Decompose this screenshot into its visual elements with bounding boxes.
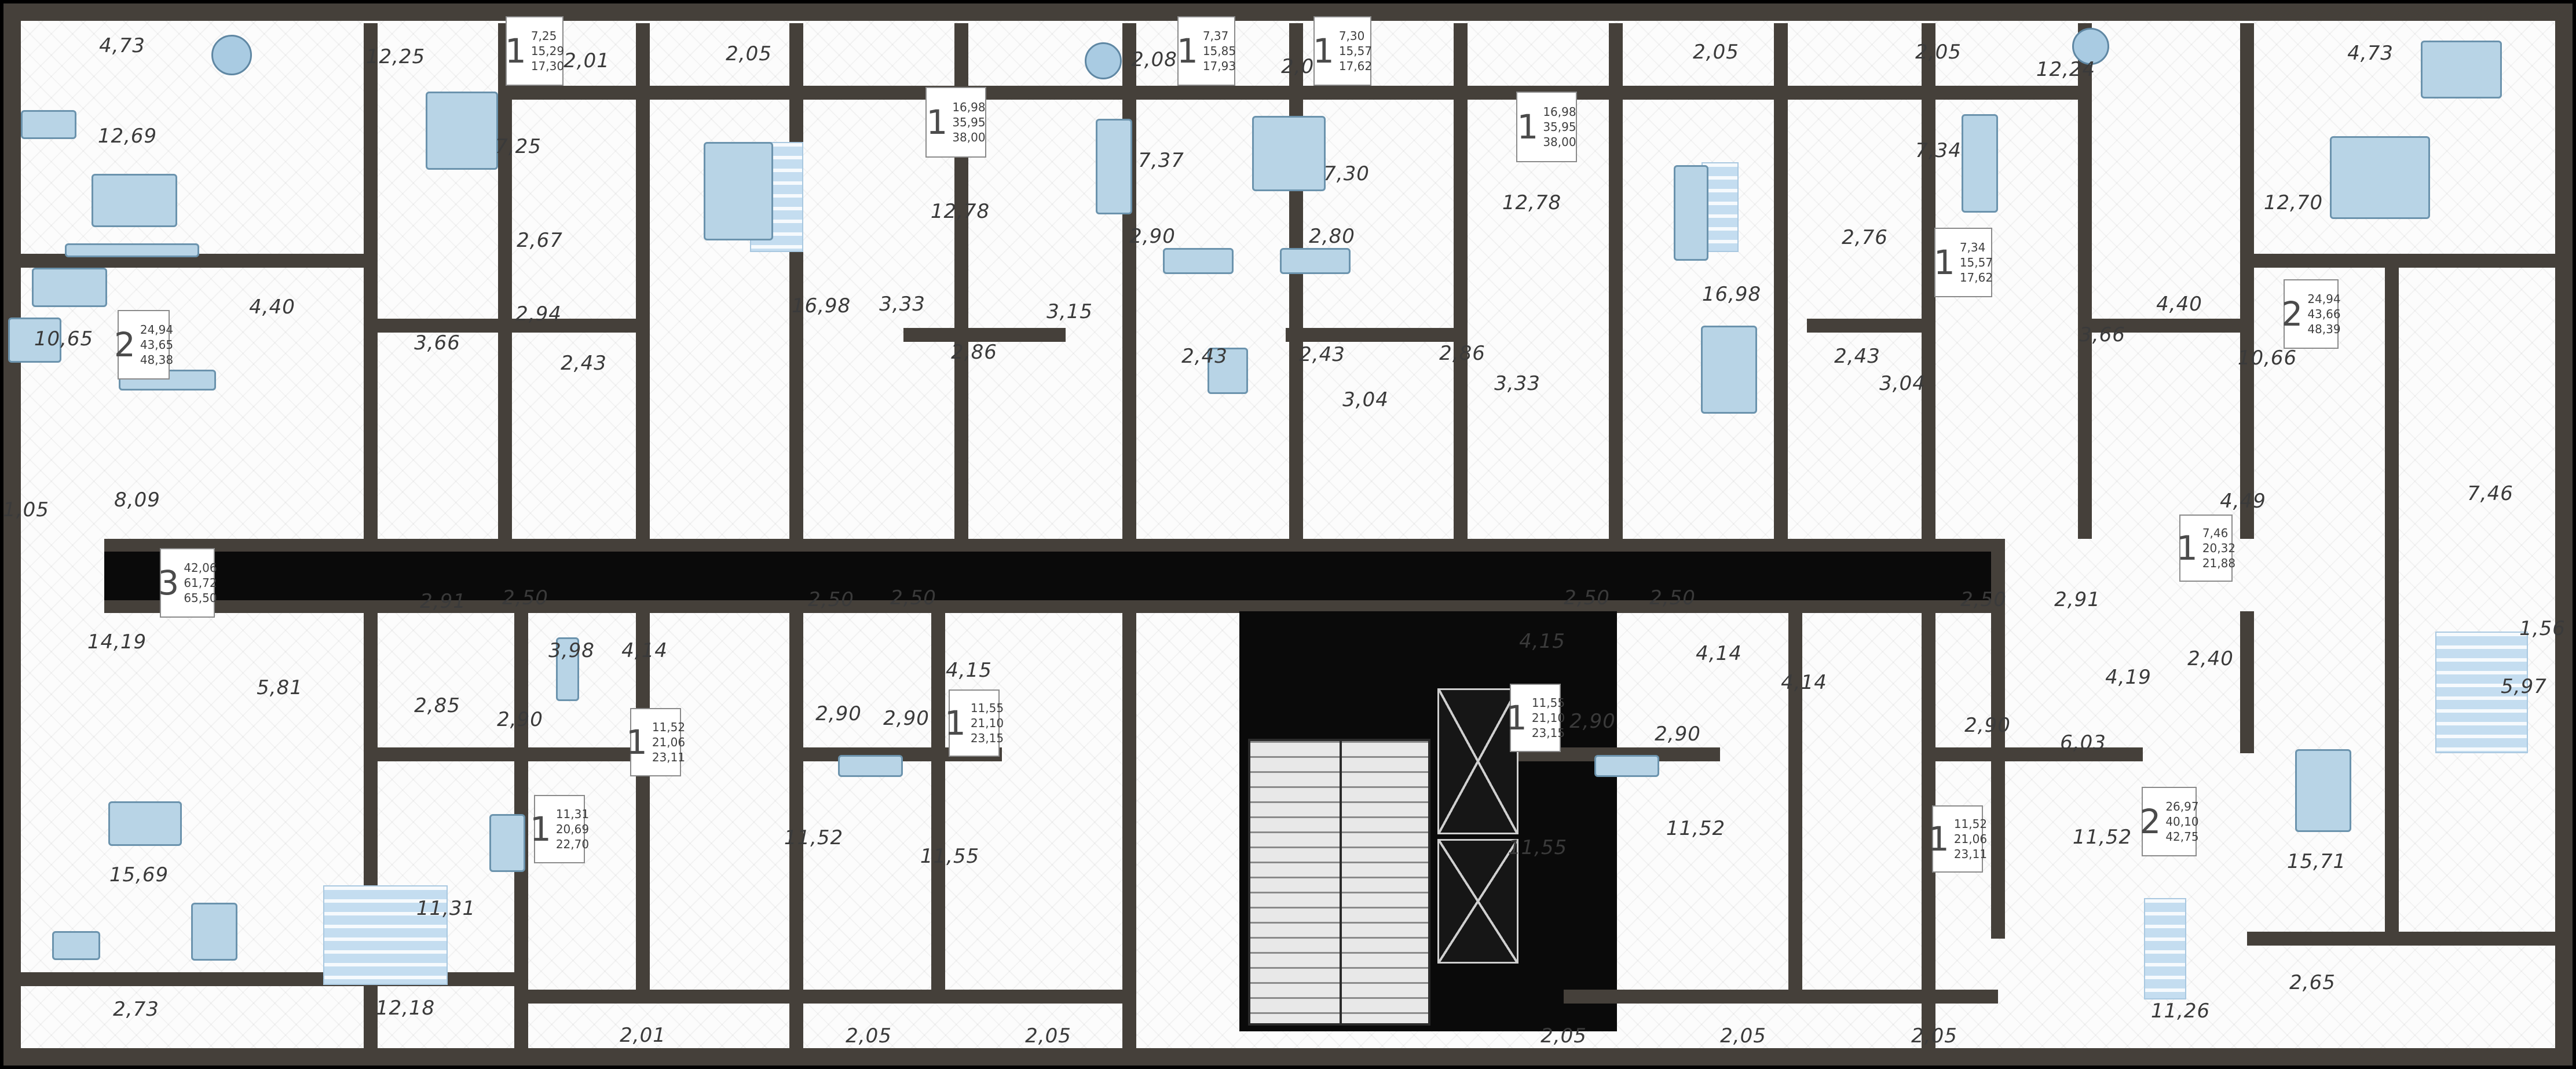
furniture-block xyxy=(838,755,903,777)
apartment-area-value: 22,70 xyxy=(556,837,589,852)
room-area-label: 4,15 xyxy=(1519,630,1565,653)
room-area-label: 12,70 xyxy=(2264,191,2323,214)
room-area-label: 3,15 xyxy=(1046,300,1093,323)
room-area-label: 3,66 xyxy=(414,331,460,355)
apartment-area-value: 23,15 xyxy=(1532,725,1565,740)
apartment-area-value: 17,62 xyxy=(1960,270,1993,285)
furniture-block xyxy=(21,110,76,139)
apartment-areas: 7,3415,5717,62 xyxy=(1960,240,1993,285)
interior-wall-vertical xyxy=(2078,23,2092,539)
room-area-label: 2,43 xyxy=(561,352,607,375)
apartment-area-value: 48,39 xyxy=(2307,322,2340,337)
apartment-rooms-count: 3 xyxy=(158,566,179,600)
room-area-label: 2,40 xyxy=(2187,647,2234,670)
apartment-areas: 24,9443,6648,39 xyxy=(2307,291,2340,337)
room-area-label: 2,05 xyxy=(726,42,772,65)
apartment-card: 116,9835,9538,00 xyxy=(1516,92,1577,162)
apartment-area-value: 43,66 xyxy=(2307,307,2340,322)
furniture-block xyxy=(1674,165,1708,261)
room-area-label: 3,98 xyxy=(548,639,595,662)
interior-wall-vertical xyxy=(789,23,803,539)
room-area-label: 11,52 xyxy=(784,826,843,849)
apartment-areas: 16,9835,9538,00 xyxy=(952,100,985,145)
interior-wall-horizontal xyxy=(371,319,643,333)
apartment-areas: 11,5521,1023,15 xyxy=(1532,695,1565,740)
interior-wall-vertical xyxy=(1774,23,1788,539)
room-area-label: 4,15 xyxy=(946,659,992,682)
interior-wall-vertical xyxy=(364,23,378,539)
apartment-area-value: 23,15 xyxy=(971,731,1004,746)
stairs-divider xyxy=(1340,741,1342,1023)
apartment-area-value: 61,72 xyxy=(184,575,217,590)
room-area-label: 2,91 xyxy=(420,590,466,613)
apartment-rooms-count: 1 xyxy=(1506,701,1527,735)
apartment-rooms-count: 1 xyxy=(945,706,966,740)
apartment-card: 224,9443,6648,39 xyxy=(2284,279,2339,349)
room-area-label: 12,18 xyxy=(376,997,435,1020)
apartment-area-value: 16,98 xyxy=(952,100,985,115)
apartment-rooms-count: 1 xyxy=(1517,110,1538,144)
room-area-label: 2,05 xyxy=(1720,1024,1766,1048)
furniture-block xyxy=(1163,248,1234,274)
room-area-label: 2,80 xyxy=(1309,225,1355,248)
apartment-area-value: 40,10 xyxy=(2165,814,2198,829)
interior-wall-vertical xyxy=(636,611,650,997)
room-area-label: 2,50 xyxy=(1564,586,1610,610)
room-area-label: 7,30 xyxy=(1323,162,1370,185)
room-area-label: 2,73 xyxy=(113,998,159,1021)
apartment-area-value: 24,94 xyxy=(2307,291,2340,307)
furniture-block xyxy=(1280,248,1351,274)
apartment-card: 17,3715,8517,93 xyxy=(1177,16,1235,86)
apartment-area-value: 35,95 xyxy=(952,115,985,130)
room-area-label: 2,90 xyxy=(883,707,930,730)
apartment-area-value: 11,55 xyxy=(971,700,1004,716)
room-area-label: 11,55 xyxy=(1508,836,1567,859)
furniture-block xyxy=(52,931,100,960)
room-area-label: 2,67 xyxy=(517,229,563,252)
apartment-card: 17,4620,3221,88 xyxy=(2179,515,2233,582)
room-area-label: 4,73 xyxy=(2347,42,2394,65)
apartment-area-value: 24,94 xyxy=(140,322,173,337)
interior-wall-vertical xyxy=(1609,23,1623,539)
apartment-area-value: 7,37 xyxy=(1203,28,1236,43)
apartment-areas: 26,9740,1042,75 xyxy=(2165,799,2198,844)
apartment-area-value: 21,10 xyxy=(1532,710,1565,725)
furniture-block xyxy=(704,142,773,240)
apartment-card: 17,3015,5717,62 xyxy=(1313,16,1371,86)
apartment-areas: 11,5221,0623,11 xyxy=(652,720,685,765)
stairs xyxy=(1248,739,1430,1026)
interior-wall-vertical xyxy=(2240,611,2254,753)
room-area-label: 10,65 xyxy=(34,327,93,351)
interior-wall-vertical xyxy=(2385,261,2399,939)
furniture-block xyxy=(1096,119,1132,214)
room-area-label: 2,05 xyxy=(1541,1024,1587,1048)
interior-wall-horizontal xyxy=(1286,328,1459,342)
furniture-block xyxy=(191,903,237,961)
room-area-label: 3,66 xyxy=(2079,323,2125,346)
interior-wall-horizontal xyxy=(903,328,1066,342)
interior-wall-vertical xyxy=(1289,23,1303,539)
apartment-rooms-count: 1 xyxy=(505,34,526,68)
apartment-rooms-count: 2 xyxy=(2281,297,2303,331)
apartment-rooms-count: 1 xyxy=(530,812,551,846)
furniture-block xyxy=(2330,136,2430,219)
room-area-label: 2,85 xyxy=(414,694,460,717)
interior-wall-horizontal xyxy=(371,747,643,761)
apartment-area-value: 43,65 xyxy=(140,337,173,352)
interior-wall-vertical xyxy=(2240,23,2254,539)
room-area-label: 8,09 xyxy=(114,488,160,512)
apartment-area-value: 11,52 xyxy=(652,720,685,735)
furniture-block xyxy=(1594,755,1659,777)
interior-wall-horizontal xyxy=(1929,747,2143,761)
apartment-area-value: 15,57 xyxy=(1960,255,1993,270)
room-area-label: 2,05 xyxy=(1915,41,1962,64)
apartment-areas: 24,9443,6548,38 xyxy=(140,322,173,367)
room-area-label: 4,40 xyxy=(2156,293,2202,316)
room-area-label: 2,01 xyxy=(620,1024,666,1047)
apartment-area-value: 11,55 xyxy=(1532,695,1565,710)
apartment-card: 17,3415,5717,62 xyxy=(1934,228,1992,297)
apartment-area-value: 48,38 xyxy=(140,352,173,367)
room-area-label: 12,24 xyxy=(2036,58,2095,81)
plant-icon xyxy=(211,35,252,75)
interior-wall-vertical xyxy=(931,611,945,997)
apartment-card: 111,5221,0623,11 xyxy=(1932,805,1983,873)
room-area-label: 2,08 xyxy=(1131,48,1177,71)
room-area-label: 2,94 xyxy=(515,302,562,326)
room-area-label: 6,03 xyxy=(2060,731,2106,754)
apartment-card: 111,3120,6922,70 xyxy=(534,795,585,863)
apartment-card: 342,0661,7265,50 xyxy=(160,548,215,618)
apartment-rooms-count: 1 xyxy=(1313,34,1334,68)
plant-icon xyxy=(1085,42,1122,79)
corridor-void xyxy=(104,539,1998,613)
apartment-card: 17,2515,2917,30 xyxy=(506,16,563,86)
room-area-label: 2,50 xyxy=(1649,586,1696,610)
furniture-block xyxy=(426,92,498,170)
room-area-label: 2,86 xyxy=(1439,342,1485,365)
rug xyxy=(2144,898,2186,999)
apartment-area-value: 15,85 xyxy=(1203,43,1236,59)
room-area-label: 2,05 xyxy=(1025,1024,1071,1048)
room-area-label: 11,26 xyxy=(2151,999,2210,1023)
apartment-areas: 7,3015,5717,62 xyxy=(1339,28,1372,74)
room-area-label: 2,43 xyxy=(1181,345,1228,368)
room-area-label: 4,49 xyxy=(2220,490,2266,513)
room-area-label: 5,81 xyxy=(257,676,303,699)
interior-wall-horizontal xyxy=(521,990,1129,1004)
room-area-label: 2,90 xyxy=(815,702,862,725)
apartment-area-value: 23,11 xyxy=(1954,847,1987,862)
furniture-block xyxy=(2295,749,2351,832)
interior-wall-horizontal xyxy=(507,86,2085,100)
apartment-area-value: 26,97 xyxy=(2165,799,2198,814)
apartment-area-value: 42,75 xyxy=(2165,829,2198,844)
room-area-label: 2,90 xyxy=(1655,723,1701,746)
interior-wall-horizontal xyxy=(1807,319,1929,333)
interior-wall-vertical xyxy=(1454,23,1468,539)
interior-wall-horizontal xyxy=(2247,254,2571,268)
room-area-label: 14,19 xyxy=(87,630,147,654)
room-area-label: 16,98 xyxy=(1702,283,1761,306)
apartment-card: 224,9443,6548,38 xyxy=(118,310,170,380)
apartment-area-value: 42,06 xyxy=(184,560,217,575)
interior-wall-horizontal xyxy=(2247,932,2571,946)
furniture-block xyxy=(92,174,177,227)
apartment-areas: 7,4620,3221,88 xyxy=(2202,526,2235,571)
apartment-areas: 7,2515,2917,30 xyxy=(531,28,564,74)
floor-plan-stage: 4,7312,252,012,052,082,052,052,0512,244,… xyxy=(0,0,2576,1069)
room-area-label: 7,25 xyxy=(495,135,541,158)
room-area-label: 10,66 xyxy=(2238,346,2297,370)
interior-wall-horizontal xyxy=(1564,990,1998,1004)
room-area-label: 2,86 xyxy=(951,341,997,364)
room-area-label: 1,56 xyxy=(2519,617,2566,640)
room-area-label: 7,46 xyxy=(2467,482,2513,505)
room-area-label: 3,33 xyxy=(1494,372,1541,395)
apartment-rooms-count: 1 xyxy=(2176,531,2198,565)
room-area-label: 4,14 xyxy=(621,639,668,662)
apartment-area-value: 23,11 xyxy=(652,750,685,765)
room-area-label: 2,50 xyxy=(808,588,854,611)
room-area-label: 2,90 xyxy=(497,708,543,731)
apartment-area-value: 35,95 xyxy=(1543,119,1576,134)
room-area-label: 3,04 xyxy=(1879,372,1926,395)
apartment-area-value: 65,50 xyxy=(184,590,217,605)
elevator-shaft-icon xyxy=(1437,839,1518,964)
apartment-areas: 7,3715,8517,93 xyxy=(1203,28,1236,74)
apartment-area-value: 7,25 xyxy=(531,28,564,43)
interior-wall-vertical xyxy=(1122,23,1136,539)
apartment-area-value: 20,69 xyxy=(556,822,589,837)
apartment-area-value: 21,10 xyxy=(971,716,1004,731)
apartment-rooms-count: 1 xyxy=(626,725,647,759)
apartment-card: 111,5521,1023,15 xyxy=(949,689,1000,757)
apartment-areas: 11,3120,6922,70 xyxy=(556,807,589,852)
room-area-label: 4,19 xyxy=(2105,666,2151,689)
interior-wall-vertical xyxy=(498,23,512,539)
room-area-label: 11,55 xyxy=(920,845,979,868)
room-area-label: 5,97 xyxy=(2501,675,2547,698)
room-area-label: 2,65 xyxy=(2289,971,2336,994)
apartment-area-value: 11,31 xyxy=(556,807,589,822)
furniture-block xyxy=(32,268,107,307)
room-area-label: 7,34 xyxy=(1915,139,1962,162)
apartment-rooms-count: 1 xyxy=(1934,246,1955,279)
interior-wall-vertical xyxy=(1788,611,1802,997)
apartment-rooms-count: 1 xyxy=(1177,34,1198,68)
room-area-label: 2,91 xyxy=(2054,588,2101,611)
apartment-area-value: 17,62 xyxy=(1339,59,1372,74)
room-area-label: 3,04 xyxy=(1342,388,1389,411)
apartment-areas: 11,5521,1023,15 xyxy=(971,700,1004,746)
furniture-block xyxy=(1252,116,1326,191)
apartment-area-value: 11,52 xyxy=(1954,816,1987,831)
apartment-card: 226,9740,1042,75 xyxy=(2142,787,2197,856)
apartment-card: 111,5221,0623,11 xyxy=(630,708,681,776)
apartment-area-value: 21,06 xyxy=(1954,831,1987,847)
apartment-area-value: 17,93 xyxy=(1203,59,1236,74)
apartment-rooms-count: 2 xyxy=(2139,805,2161,838)
interior-wall-vertical xyxy=(636,23,650,539)
furniture-block xyxy=(1962,114,1998,213)
furniture-block xyxy=(65,243,199,257)
room-area-label: 4,14 xyxy=(1696,642,1742,665)
room-area-label: 11,31 xyxy=(416,897,475,920)
room-area-label: 2,43 xyxy=(1834,345,1880,368)
room-area-label: 2,50 xyxy=(890,586,936,610)
apartment-area-value: 7,46 xyxy=(2202,526,2235,541)
room-area-label: 12,69 xyxy=(98,125,157,148)
apartment-area-value: 15,57 xyxy=(1339,43,1372,59)
room-area-label: 12,78 xyxy=(1502,191,1561,214)
apartment-area-value: 21,06 xyxy=(652,735,685,750)
room-area-label: 12,78 xyxy=(931,200,990,223)
apartment-rooms-count: 1 xyxy=(1928,822,1949,856)
room-area-label: 12,25 xyxy=(366,45,425,68)
room-area-label: 2,43 xyxy=(1299,343,1345,366)
apartment-card: 111,5521,1023,15 xyxy=(1510,684,1561,752)
apartment-area-value: 38,00 xyxy=(1543,134,1576,149)
room-area-label: 2,01 xyxy=(563,49,610,72)
room-area-label: 4,40 xyxy=(249,295,295,319)
apartment-area-value: 7,34 xyxy=(1960,240,1993,255)
apartment-areas: 16,9835,9538,00 xyxy=(1543,104,1576,149)
room-area-label: 2,76 xyxy=(1842,226,1888,249)
apartment-area-value: 38,00 xyxy=(952,130,985,145)
room-area-label: 2,90 xyxy=(1129,225,1176,248)
apartment-areas: 42,0661,7265,50 xyxy=(184,560,217,605)
room-area-label: 15,71 xyxy=(2287,850,2346,873)
furniture-block xyxy=(489,814,525,872)
room-area-label: 7,37 xyxy=(1138,149,1184,172)
room-area-label: 2,50 xyxy=(1960,588,2007,611)
room-area-label: 2,05 xyxy=(1693,41,1739,64)
apartment-areas: 11,5221,0623,11 xyxy=(1954,816,1987,862)
room-area-label: 15,69 xyxy=(109,863,169,886)
room-area-label: 2,05 xyxy=(1911,1024,1957,1048)
furniture-block xyxy=(2421,41,2502,98)
furniture-block xyxy=(108,801,182,846)
room-area-label: 2,05 xyxy=(846,1024,892,1048)
room-area-label: 1,05 xyxy=(3,498,49,521)
apartment-area-value: 16,98 xyxy=(1543,104,1576,119)
apartment-card: 116,9835,9538,00 xyxy=(925,87,986,158)
apartment-area-value: 17,30 xyxy=(531,59,564,74)
room-area-label: 2,90 xyxy=(1569,710,1616,733)
room-area-label: 2,50 xyxy=(502,586,548,610)
apartment-rooms-count: 2 xyxy=(114,328,136,362)
apartment-area-value: 7,30 xyxy=(1339,28,1372,43)
room-area-label: 4,14 xyxy=(1781,671,1827,694)
room-area-label: 4,73 xyxy=(99,34,145,57)
room-area-label: 3,33 xyxy=(879,293,925,316)
room-area-label: 16,98 xyxy=(792,294,851,318)
apartment-area-value: 20,32 xyxy=(2202,541,2235,556)
room-area-label: 11,52 xyxy=(2073,826,2132,849)
room-area-label: 11,52 xyxy=(1666,817,1725,840)
furniture-block xyxy=(1701,326,1757,414)
apartment-area-value: 21,88 xyxy=(2202,556,2235,571)
apartment-rooms-count: 1 xyxy=(926,105,947,139)
room-area-label: 2,90 xyxy=(1964,714,2011,737)
apartment-area-value: 15,29 xyxy=(531,43,564,59)
